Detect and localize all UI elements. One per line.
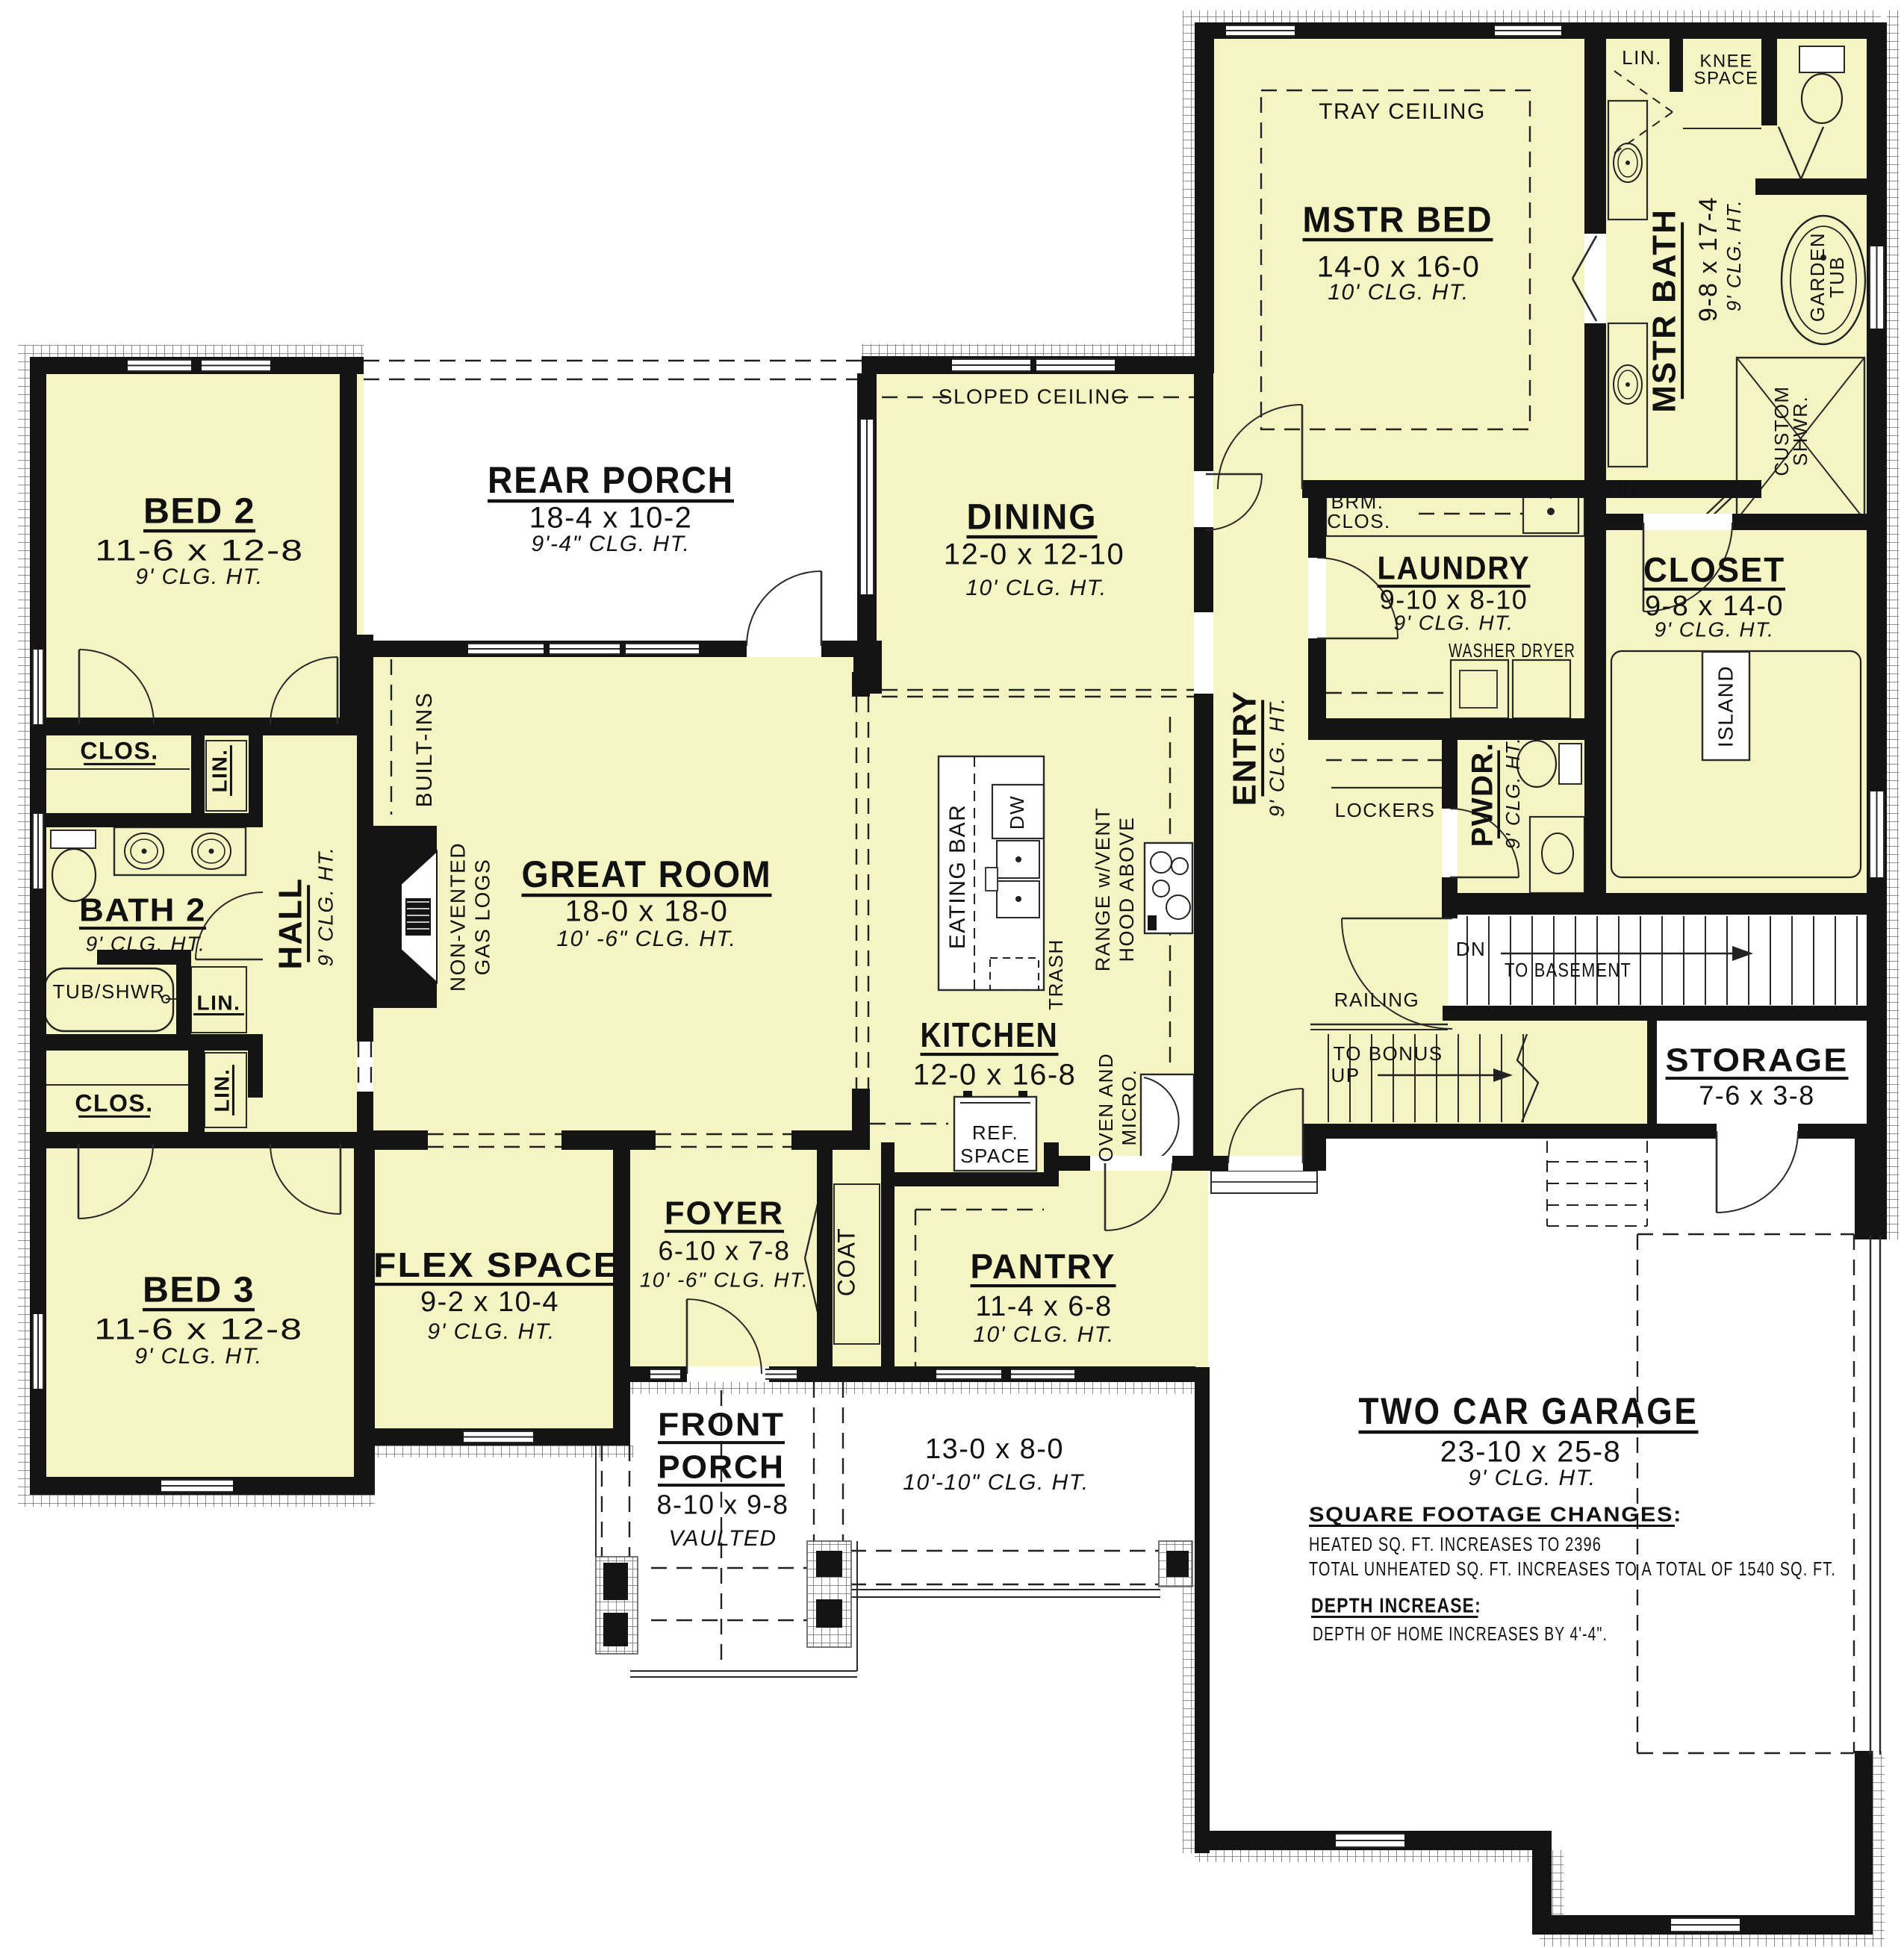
svg-text:DEPTH INCREASE:: DEPTH INCREASE: bbox=[1311, 1593, 1481, 1616]
svg-text:FLEX SPACE: FLEX SPACE bbox=[373, 1245, 620, 1284]
svg-text:TRASH: TRASH bbox=[1045, 939, 1067, 1010]
svg-text:STORAGE: STORAGE bbox=[1666, 1042, 1849, 1079]
svg-text:SQUARE FOOTAGE CHANGES:: SQUARE FOOTAGE CHANGES: bbox=[1309, 1502, 1682, 1525]
svg-text:BATH 2: BATH 2 bbox=[79, 892, 206, 929]
svg-text:DEPTH OF HOME INCREASES BY 4'-: DEPTH OF HOME INCREASES BY 4'-4". bbox=[1313, 1622, 1608, 1645]
svg-text:6-10 x 7-8: 6-10 x 7-8 bbox=[658, 1236, 790, 1266]
svg-text:TOTAL UNHEATED SQ. FT. INCREAS: TOTAL UNHEATED SQ. FT. INCREASES TO A TO… bbox=[1309, 1558, 1836, 1580]
svg-text:LIN.: LIN. bbox=[210, 1068, 233, 1113]
svg-text:10' CLG. HT.: 10' CLG. HT. bbox=[1328, 280, 1469, 305]
svg-text:DN: DN bbox=[1456, 938, 1487, 960]
svg-text:TUB/SHWR: TUB/SHWR bbox=[53, 980, 166, 1003]
svg-text:EATING BAR: EATING BAR bbox=[945, 804, 970, 949]
svg-text:10'-10" CLG. HT.: 10'-10" CLG. HT. bbox=[903, 1470, 1089, 1495]
svg-text:9-10 x 8-10: 9-10 x 8-10 bbox=[1380, 585, 1528, 615]
svg-text:9' CLG. HT.: 9' CLG. HT. bbox=[314, 847, 337, 967]
svg-text:13-0 x 8-0: 13-0 x 8-0 bbox=[925, 1434, 1064, 1465]
svg-text:9' CLG. HT.: 9' CLG. HT. bbox=[427, 1319, 555, 1344]
svg-text:HOOD ABOVE: HOOD ABOVE bbox=[1116, 816, 1138, 962]
svg-text:9'-4" CLG. HT.: 9'-4" CLG. HT. bbox=[532, 532, 691, 556]
svg-text:PWDR.: PWDR. bbox=[1466, 742, 1499, 847]
svg-text:DINING: DINING bbox=[967, 498, 1098, 538]
svg-text:10' CLG. HT.: 10' CLG. HT. bbox=[973, 1322, 1114, 1347]
svg-text:TWO CAR GARAGE: TWO CAR GARAGE bbox=[1359, 1390, 1699, 1432]
svg-text:ISLAND: ISLAND bbox=[1714, 665, 1737, 747]
svg-text:9' CLG. HT.: 9' CLG. HT. bbox=[1723, 199, 1745, 312]
svg-text:18-4 x 10-2: 18-4 x 10-2 bbox=[529, 502, 693, 535]
svg-text:SLOPED CEILING: SLOPED CEILING bbox=[939, 385, 1128, 408]
svg-text:LAUNDRY: LAUNDRY bbox=[1378, 550, 1531, 587]
svg-text:SHWR.: SHWR. bbox=[1789, 396, 1811, 466]
svg-text:9' CLG. HT.: 9' CLG. HT. bbox=[1468, 1466, 1596, 1490]
svg-text:RANGE w/VENT: RANGE w/VENT bbox=[1092, 807, 1114, 972]
svg-text:7-6 x 3-8: 7-6 x 3-8 bbox=[1699, 1080, 1815, 1111]
svg-text:BUILT-INS: BUILT-INS bbox=[412, 692, 437, 808]
svg-text:MSTR BED: MSTR BED bbox=[1303, 201, 1493, 240]
svg-text:9' CLG. HT.: 9' CLG. HT. bbox=[1655, 617, 1775, 641]
svg-text:HALL: HALL bbox=[273, 877, 309, 969]
svg-text:FRONT: FRONT bbox=[658, 1407, 785, 1443]
svg-text:CLOSET: CLOSET bbox=[1643, 550, 1785, 589]
svg-text:11-6 x 12-8: 11-6 x 12-8 bbox=[95, 535, 304, 567]
svg-text:10' -6" CLG. HT.: 10' -6" CLG. HT. bbox=[556, 927, 736, 951]
svg-text:OVEN AND: OVEN AND bbox=[1095, 1053, 1117, 1162]
svg-text:BED 3: BED 3 bbox=[143, 1271, 255, 1310]
svg-text:REAR PORCH: REAR PORCH bbox=[488, 459, 734, 501]
svg-text:CLOS.: CLOS. bbox=[80, 737, 158, 764]
svg-text:12-0 x 12-10: 12-0 x 12-10 bbox=[944, 538, 1125, 571]
svg-text:9' CLG. HT.: 9' CLG. HT. bbox=[86, 932, 206, 955]
svg-text:CLOS.: CLOS. bbox=[1327, 510, 1391, 532]
svg-text:9-8 x 17-4: 9-8 x 17-4 bbox=[1694, 196, 1723, 322]
svg-text:9' CLG. HT.: 9' CLG. HT. bbox=[135, 564, 263, 589]
svg-text:9' CLG. HT.: 9' CLG. HT. bbox=[1394, 611, 1514, 634]
svg-text:10' -6" CLG. HT.: 10' -6" CLG. HT. bbox=[640, 1268, 809, 1291]
svg-text:MSTR BATH: MSTR BATH bbox=[1646, 208, 1683, 413]
svg-text:SPACE: SPACE bbox=[960, 1145, 1030, 1167]
svg-text:12-0 x 16-8: 12-0 x 16-8 bbox=[913, 1059, 1077, 1092]
svg-text:TO BONUS: TO BONUS bbox=[1333, 1042, 1443, 1065]
svg-text:ENTRY: ENTRY bbox=[1227, 691, 1263, 806]
svg-text:HEATED SQ. FT. INCREASES TO 2: HEATED SQ. FT. INCREASES TO 2396 bbox=[1309, 1533, 1602, 1555]
svg-text:10' CLG. HT.: 10' CLG. HT. bbox=[965, 576, 1107, 600]
svg-text:PANTRY: PANTRY bbox=[971, 1247, 1116, 1286]
svg-text:PORCH: PORCH bbox=[658, 1449, 785, 1486]
svg-text:GREAT ROOM: GREAT ROOM bbox=[522, 853, 772, 895]
svg-text:WASHER DRYER: WASHER DRYER bbox=[1449, 639, 1575, 662]
svg-text:LIN.: LIN. bbox=[197, 991, 241, 1014]
svg-text:TRAY CEILING: TRAY CEILING bbox=[1319, 99, 1486, 124]
svg-text:MICRO.: MICRO. bbox=[1118, 1069, 1140, 1146]
svg-text:KITCHEN: KITCHEN bbox=[921, 1015, 1059, 1054]
svg-text:9' CLG. HT.: 9' CLG. HT. bbox=[1265, 697, 1288, 818]
svg-text:COAT: COAT bbox=[833, 1227, 859, 1297]
svg-text:UP: UP bbox=[1331, 1064, 1360, 1086]
svg-text:LIN.: LIN. bbox=[208, 749, 231, 793]
svg-text:LIN.: LIN. bbox=[1622, 46, 1662, 69]
svg-text:LIN.: LIN. bbox=[1606, 479, 1643, 500]
svg-text:DW: DW bbox=[1006, 795, 1028, 830]
svg-text:BED 2: BED 2 bbox=[143, 492, 255, 532]
svg-text:NON-VENTED: NON-VENTED bbox=[446, 842, 469, 992]
svg-text:TUB: TUB bbox=[1826, 256, 1848, 299]
svg-text:FOYER: FOYER bbox=[665, 1195, 784, 1232]
svg-text:11-4 x 6-8: 11-4 x 6-8 bbox=[975, 1291, 1112, 1322]
svg-text:9-2 x 10-4: 9-2 x 10-4 bbox=[420, 1286, 559, 1318]
svg-text:GAS LOGS: GAS LOGS bbox=[470, 859, 494, 976]
svg-text:VAULTED: VAULTED bbox=[669, 1526, 777, 1551]
svg-text:LOCKERS: LOCKERS bbox=[1335, 799, 1436, 821]
svg-text:RAILING: RAILING bbox=[1334, 989, 1420, 1011]
svg-text:14-0 x 16-0: 14-0 x 16-0 bbox=[1317, 251, 1481, 284]
svg-text:9' CLG. HT.: 9' CLG. HT. bbox=[1502, 737, 1524, 850]
svg-text:9' CLG. HT.: 9' CLG. HT. bbox=[134, 1344, 262, 1369]
svg-text:8-10 x 9-8: 8-10 x 9-8 bbox=[656, 1490, 788, 1520]
svg-text:18-0 x 18-0: 18-0 x 18-0 bbox=[565, 895, 729, 928]
svg-text:TO BASEMENT: TO BASEMENT bbox=[1505, 959, 1631, 981]
svg-text:11-6 x 12-8: 11-6 x 12-8 bbox=[94, 1313, 303, 1346]
svg-text:CLOS.: CLOS. bbox=[75, 1089, 153, 1116]
svg-text:SPACE: SPACE bbox=[1693, 68, 1758, 88]
svg-text:23-10 x 25-8: 23-10 x 25-8 bbox=[1440, 1436, 1622, 1469]
svg-text:REF.: REF. bbox=[972, 1121, 1018, 1144]
